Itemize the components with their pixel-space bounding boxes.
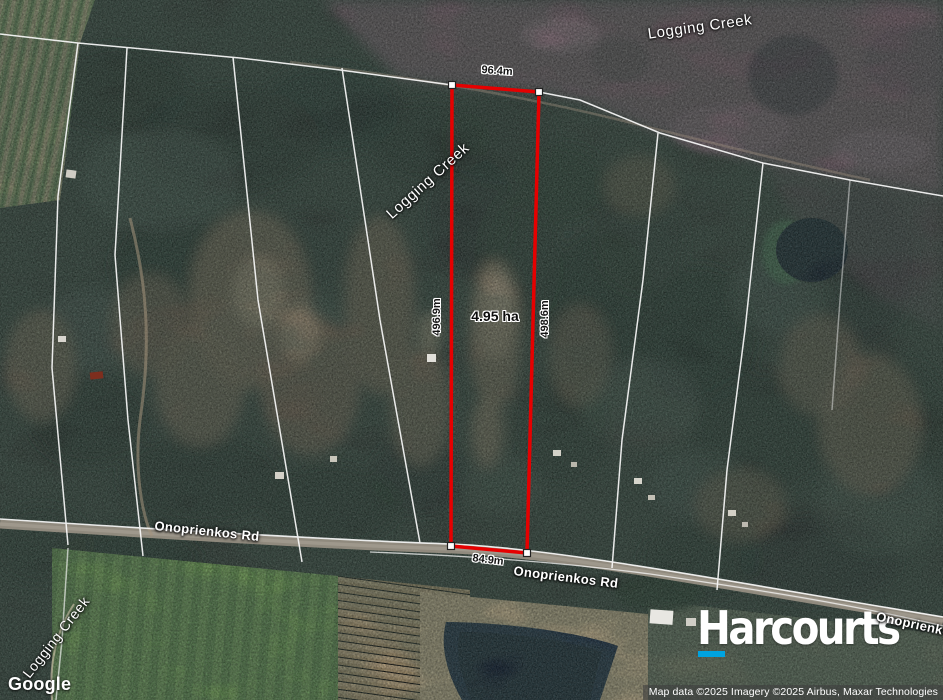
map-attribution: Map data ©2025 Imagery ©2025 Airbus, Max… [643,685,943,700]
vertex-bottom-left [448,543,455,550]
satellite-map-canvas[interactable]: Logging Creek Logging Creek Logging Cree… [0,0,943,700]
vertex-top-left [449,82,456,89]
vertex-bottom-right [524,550,531,557]
harcourts-accent-bar [698,651,725,657]
satellite-imagery [0,0,943,700]
vertex-top-right [536,89,543,96]
google-logo[interactable]: Google [8,674,71,695]
